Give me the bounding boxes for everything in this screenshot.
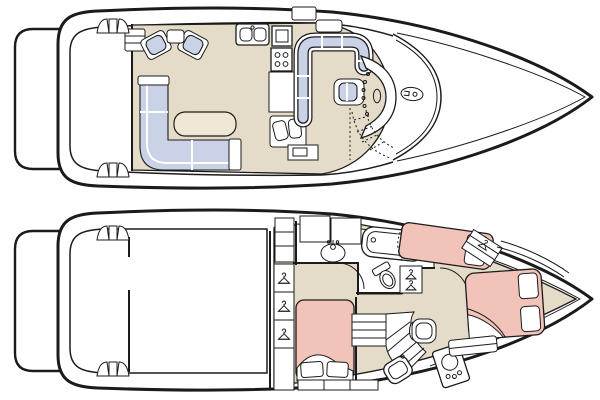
- sink-basin: [240, 28, 252, 41]
- main-deck-plan: [15, 7, 592, 188]
- refrigerator: [272, 26, 292, 46]
- hanging-locker: [400, 266, 422, 293]
- hanging-lockers: [274, 264, 294, 390]
- pillow: [327, 361, 349, 377]
- sink-basin: [254, 28, 266, 41]
- storage-cabinet: [300, 216, 330, 242]
- boarding-steps-icon: [97, 226, 129, 240]
- lower-deck-plan: [15, 210, 592, 390]
- storage-cabinet: [331, 218, 361, 244]
- sofa-end-table: [138, 76, 169, 85]
- floor-plan-canvas: [0, 0, 600, 400]
- pillow: [518, 273, 539, 299]
- settee: [298, 380, 378, 390]
- counter: [269, 72, 294, 112]
- pillow: [520, 306, 541, 332]
- pillow: [300, 361, 323, 377]
- coffee-table: [174, 112, 236, 136]
- boarding-steps-icon: [97, 362, 129, 376]
- boarding-steps-icon: [97, 19, 129, 33]
- boarding-steps-icon: [97, 163, 129, 177]
- tv-cabinet: [288, 145, 318, 160]
- companionway-cabinet: [275, 218, 294, 262]
- floor-plan: [0, 0, 600, 400]
- side-table: [167, 30, 184, 43]
- helm-seat: [334, 79, 364, 105]
- dinette-hatch: [316, 20, 342, 32]
- vanity-stool: [410, 319, 437, 343]
- stove-icon: [271, 48, 292, 71]
- sofa-end-cap: [229, 139, 241, 170]
- deck-hatch: [292, 7, 316, 20]
